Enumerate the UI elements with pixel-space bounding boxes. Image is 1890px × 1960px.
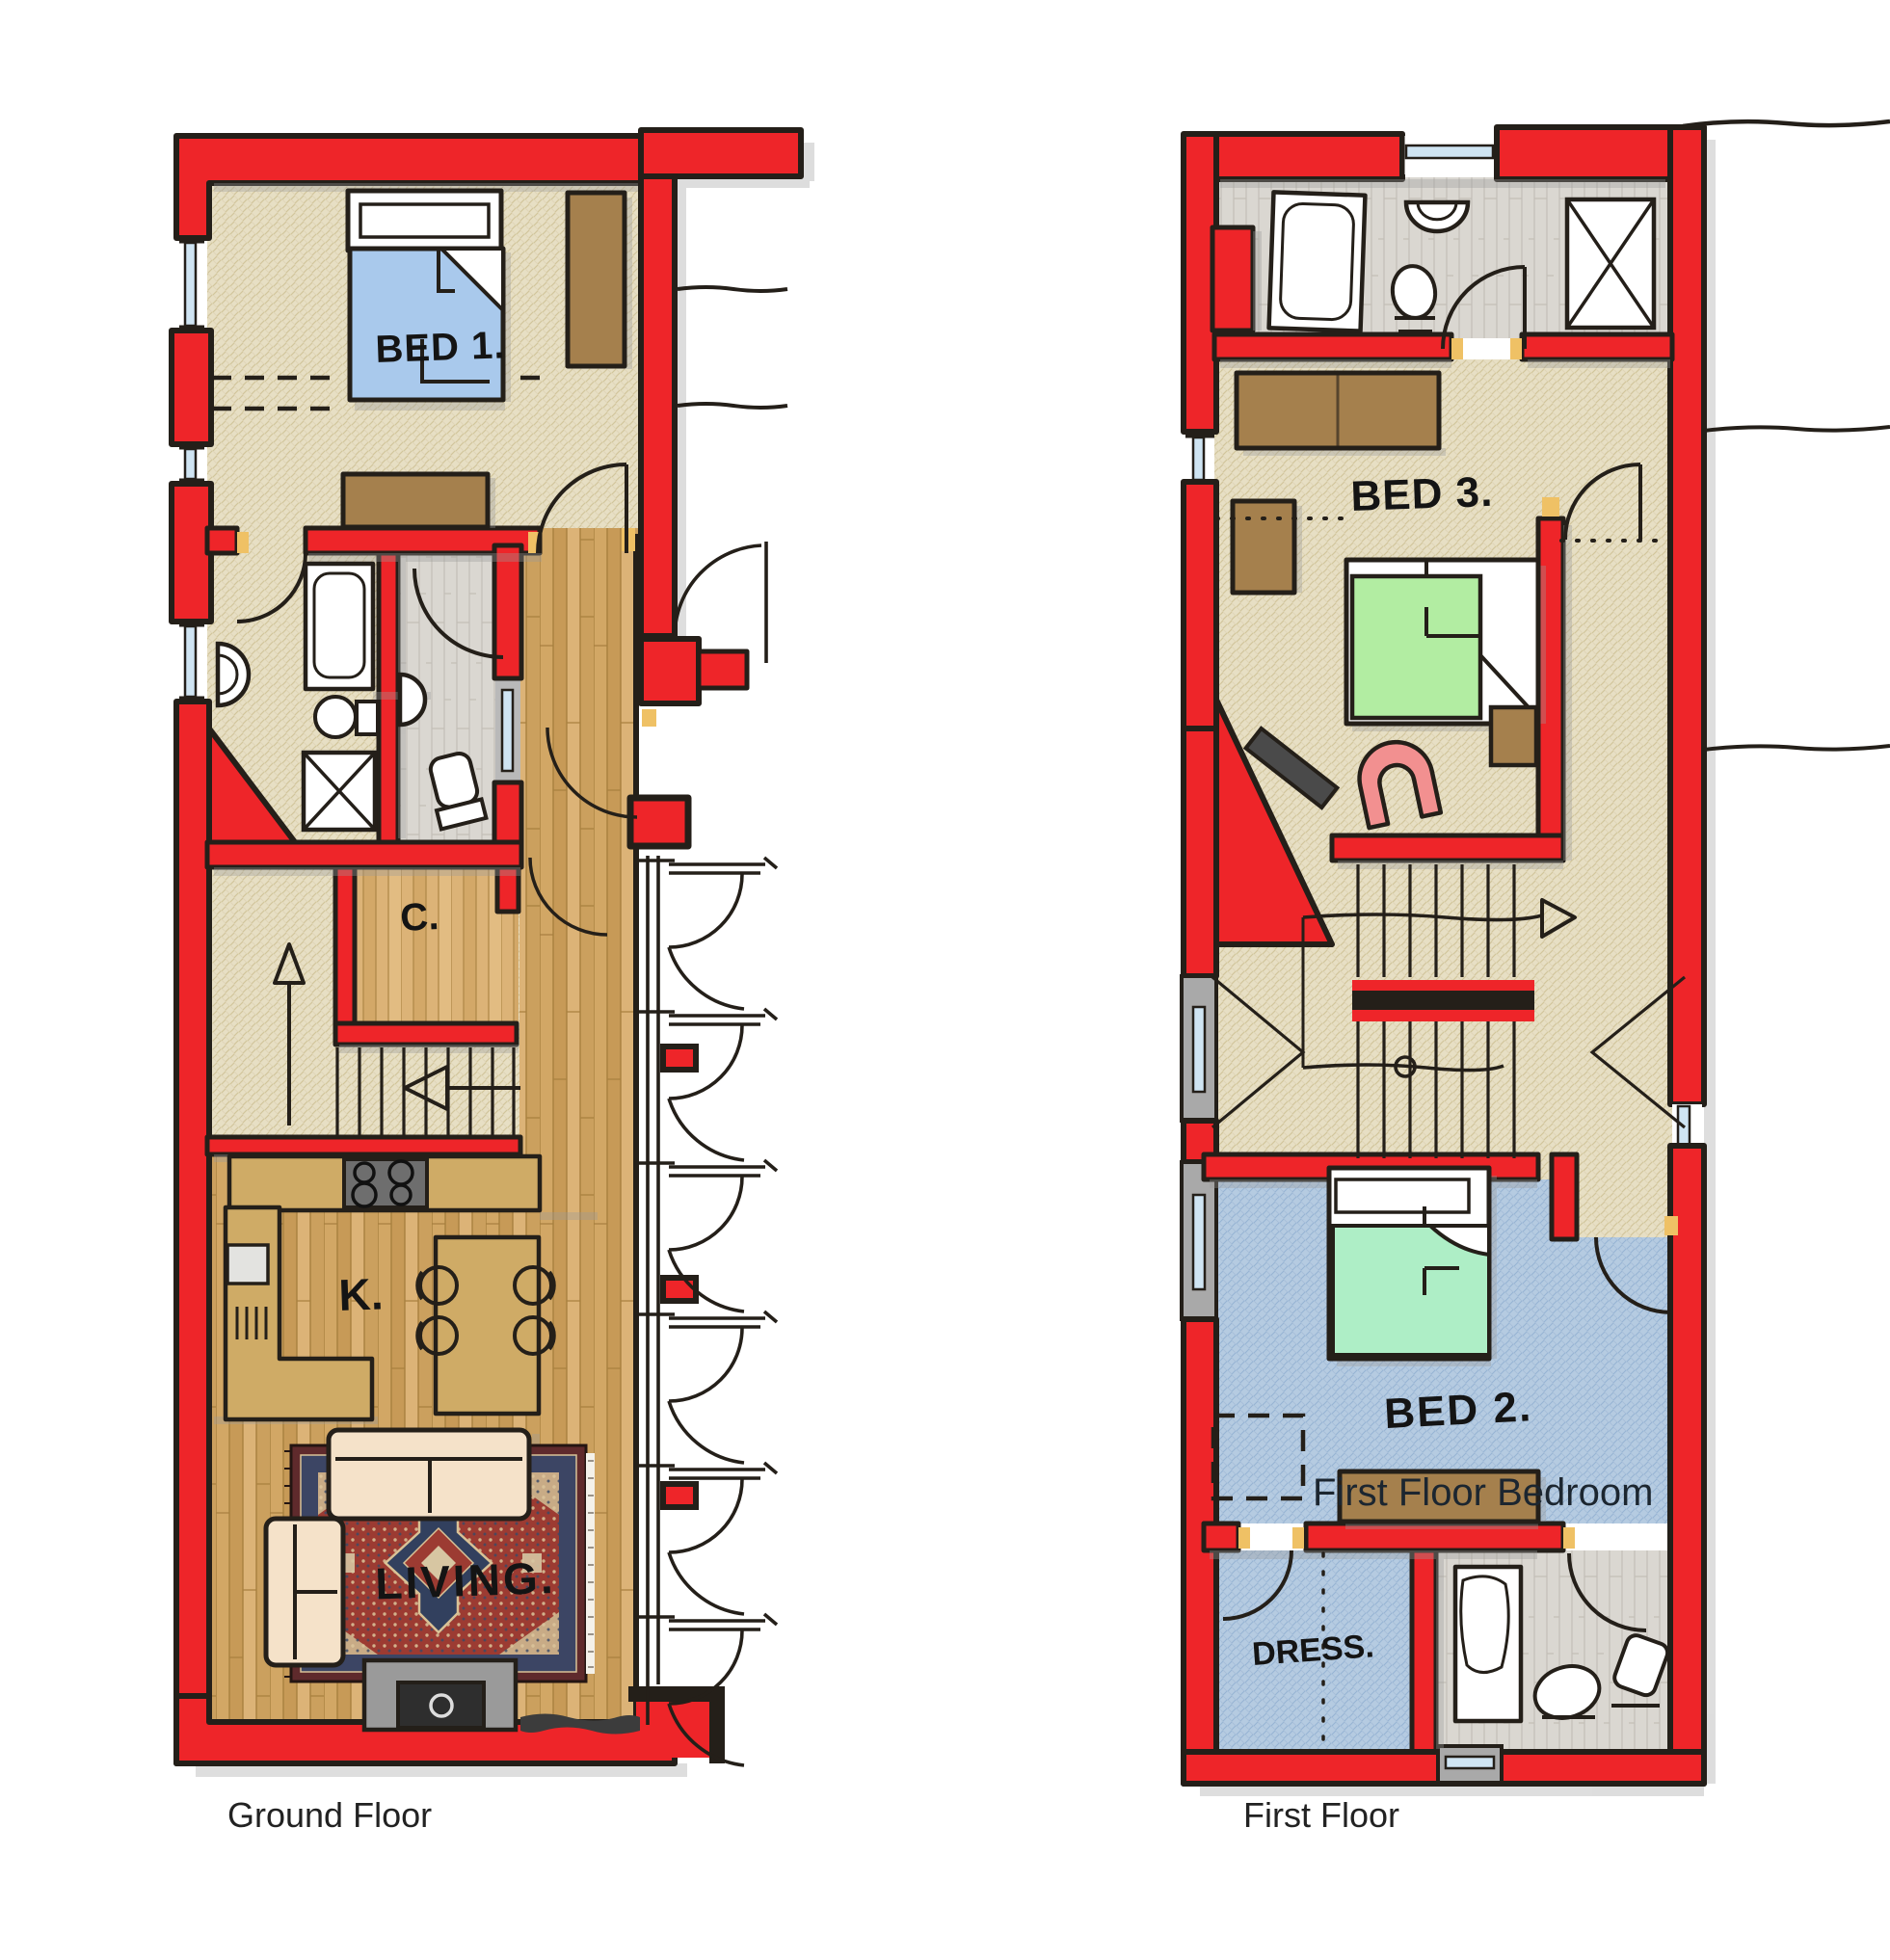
svg-text:C.: C. xyxy=(399,895,439,940)
svg-text:First Floor Bedroom: First Floor Bedroom xyxy=(1313,1471,1653,1514)
svg-text:First Floor: First Floor xyxy=(1243,1795,1399,1835)
svg-text:LIVING.: LIVING. xyxy=(375,1552,557,1608)
svg-text:BED 2.: BED 2. xyxy=(1383,1383,1533,1438)
svg-text:Ground Floor: Ground Floor xyxy=(227,1795,432,1835)
svg-text:BED 1.: BED 1. xyxy=(375,324,506,371)
svg-text:K.: K. xyxy=(338,1268,385,1320)
svg-text:BED 3.: BED 3. xyxy=(1350,468,1494,520)
